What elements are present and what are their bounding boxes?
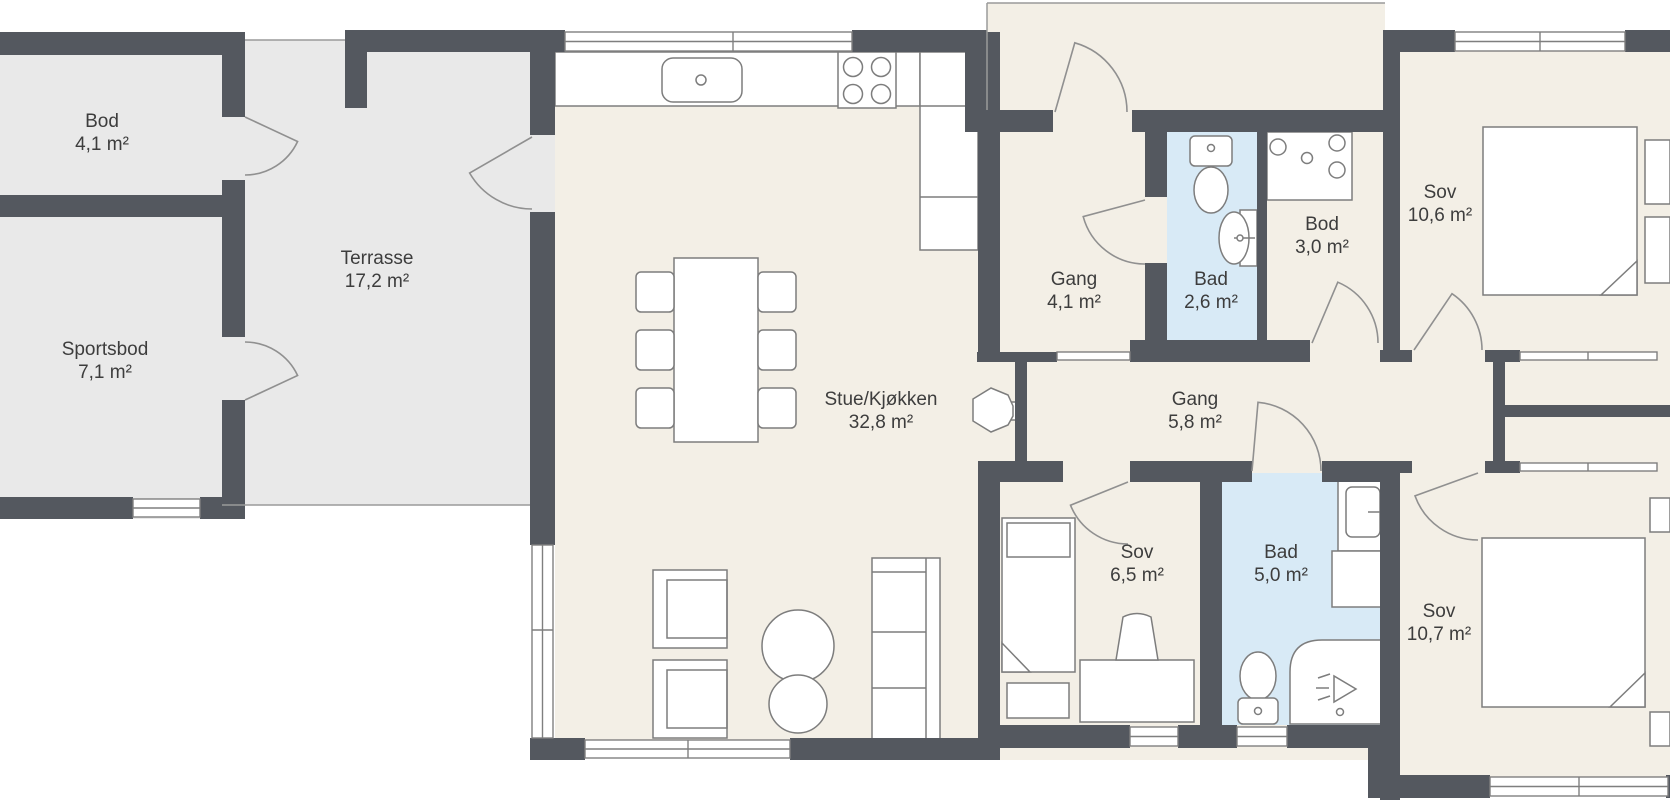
room-label-bod-storage: Bod4,1 m² <box>75 110 129 156</box>
bathroom-vanity <box>1338 475 1386 551</box>
room-area: 5,0 m² <box>1254 564 1308 587</box>
room-label-gang-entry: Gang4,1 m² <box>1047 268 1101 314</box>
room-name: Bod <box>75 110 129 133</box>
room-label-stue-kjokken: Stue/Kjøkken32,8 m² <box>825 388 938 434</box>
room-label-bad-small: Bad2,6 m² <box>1184 268 1238 314</box>
washbasin-icon <box>1219 210 1257 266</box>
armchair <box>653 660 727 738</box>
room-name: Sov <box>1407 600 1471 623</box>
window <box>133 499 200 517</box>
room-name: Bod <box>1295 213 1349 236</box>
nightstand <box>1645 217 1670 283</box>
room-area: 2,6 m² <box>1184 291 1238 314</box>
window <box>532 545 553 738</box>
room-name: Gang <box>1047 268 1101 291</box>
coffee-table <box>762 610 834 733</box>
room-name: Sov <box>1408 181 1472 204</box>
room-label-bod-laundry: Bod3,0 m² <box>1295 213 1349 259</box>
room-area: 4,1 m² <box>1047 291 1101 314</box>
desk-chair <box>1116 614 1158 661</box>
room-label-bad-large: Bad5,0 m² <box>1254 541 1308 587</box>
kitchen-sink-icon <box>662 58 742 102</box>
room-area: 7,1 m² <box>62 361 149 384</box>
room-label-sportsbod: Sportsbod7,1 m² <box>62 338 149 384</box>
room-label-terrasse: Terrasse17,2 m² <box>341 247 414 293</box>
room-name: Bad <box>1184 268 1238 291</box>
room-area: 3,0 m² <box>1295 236 1349 259</box>
double-bed <box>1482 538 1645 707</box>
desk <box>1080 660 1194 722</box>
doorway-threshold <box>1057 352 1130 360</box>
room-area: 32,8 m² <box>825 411 938 434</box>
stove-icon <box>838 52 896 108</box>
floor-plan: Bod4,1 m² Sportsbod7,1 m² Terrasse17,2 m… <box>0 0 1670 800</box>
shower-icon <box>1290 640 1382 724</box>
room-name: Sov <box>1110 541 1164 564</box>
wardrobe-front <box>1520 463 1657 471</box>
window <box>1237 727 1287 746</box>
double-bed <box>1483 127 1637 295</box>
window <box>1130 727 1178 746</box>
room-label-sov-2: Sov6,5 m² <box>1110 541 1164 587</box>
nightstand <box>1007 683 1069 718</box>
window <box>565 32 852 51</box>
room-name: Stue/Kjøkken <box>825 388 938 411</box>
armchair <box>653 570 727 648</box>
laundry-counter-icon <box>1267 132 1352 200</box>
room-label-sov-3: Sov10,7 m² <box>1407 600 1471 646</box>
window <box>585 740 790 758</box>
room-area: 6,5 m² <box>1110 564 1164 587</box>
wardrobe-front <box>1520 352 1657 360</box>
window <box>1455 32 1625 51</box>
room-area: 17,2 m² <box>341 270 414 293</box>
dining-table <box>674 258 758 442</box>
entry-porch-floor <box>987 3 1385 112</box>
single-bed <box>1002 518 1075 672</box>
room-area: 10,6 m² <box>1408 204 1472 227</box>
room-area: 5,8 m² <box>1168 411 1222 434</box>
room-name: Terrasse <box>341 247 414 270</box>
room-name: Gang <box>1168 388 1222 411</box>
room-name: Bad <box>1254 541 1308 564</box>
bathroom-cabinet <box>1332 551 1386 607</box>
toilet-icon <box>1238 652 1278 724</box>
nightstand <box>1650 498 1670 532</box>
window <box>1490 777 1668 796</box>
room-name: Sportsbod <box>62 338 149 361</box>
room-label-sov-1: Sov10,6 m² <box>1408 181 1472 227</box>
nightstand <box>1645 140 1670 204</box>
room-area: 10,7 m² <box>1407 623 1471 646</box>
nightstand <box>1650 712 1670 746</box>
sofa <box>872 558 940 754</box>
room-area: 4,1 m² <box>75 133 129 156</box>
room-label-gang-inner: Gang5,8 m² <box>1168 388 1222 434</box>
